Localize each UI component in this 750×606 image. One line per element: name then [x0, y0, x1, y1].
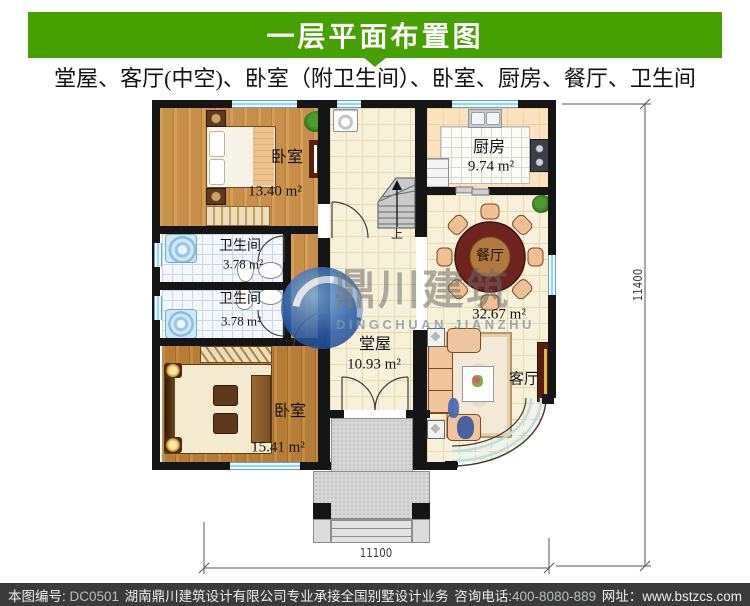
bedroom2-label: 卧室: [274, 404, 306, 420]
bedroom1-label: 卧室: [271, 150, 303, 166]
footer-site-label: 网址：: [602, 589, 643, 604]
footer-company: 湖南鼎川建筑设计有限公司专业承接全国别墅设计业务: [125, 585, 449, 605]
bath1-area: 3.78 m²: [223, 258, 263, 271]
floorplan-page: 一层平面布置图 堂屋、客厅(中空)、卧室（附卫生间）、卧室、厨房、餐厅、卫生间: [0, 0, 750, 606]
footer-site: 网址：www.bstzcs.com: [602, 585, 742, 605]
dimension-right: 11400: [632, 269, 644, 301]
kitchen-label: 厨房: [473, 140, 505, 156]
bath2-area: 3.78 m²: [221, 315, 261, 328]
bedroom1-area: 13.40 m²: [248, 185, 302, 200]
footer-phone-label: 咨询电话:: [454, 589, 512, 604]
footer-phone: 咨询电话:400-8080-889: [454, 585, 596, 605]
kitchen-area: 9.74 m²: [468, 160, 514, 175]
footer-phone-value: 400-8080-889: [512, 589, 596, 604]
hall-label: 堂屋: [359, 337, 391, 353]
watermark: 鼎川建筑 DINGCHUAN JIANZHU: [0, 0, 750, 606]
living-label: 客厅: [509, 373, 539, 388]
dining-area: 32.67 m²: [472, 308, 526, 323]
footer-site-value: www.bstzcs.com: [642, 589, 742, 604]
dimension-bottom: 11100: [360, 547, 392, 559]
dining-label: 餐厅: [476, 250, 504, 264]
bath1-label: 卫生间: [219, 240, 261, 254]
footer-bar: 本图编号: DC0501 湖南鼎川建筑设计有限公司专业承接全国别墅设计业务 咨询…: [0, 583, 750, 606]
footer-sn: 本图编号: DC0501: [8, 585, 119, 605]
footer-sn-label: 本图编号:: [8, 589, 70, 604]
footer-sn-value: DC0501: [70, 589, 120, 604]
hall-area: 10.93 m²: [347, 358, 401, 373]
bath2-label: 卫生间: [219, 293, 261, 307]
stairs-up-label: 上: [391, 228, 403, 240]
bedroom2-area: 15.41 m²: [251, 441, 305, 456]
